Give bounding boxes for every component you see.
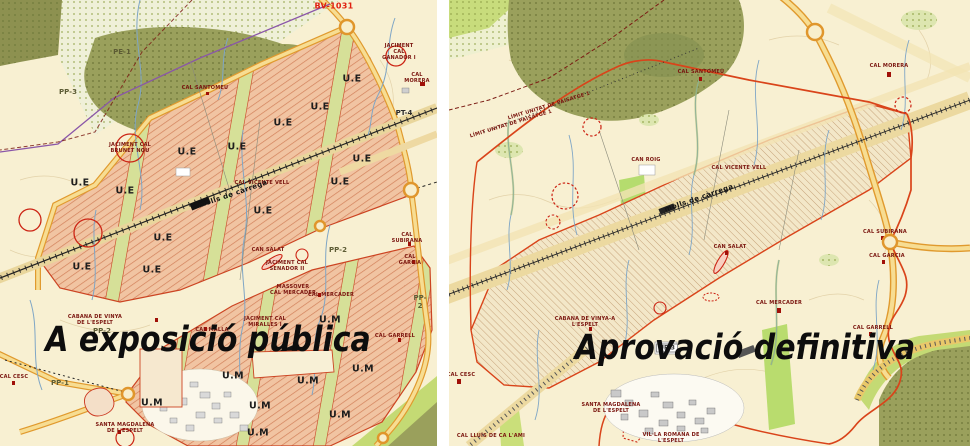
right-map-graphics [449,0,970,446]
left-map-status-title: A exposició pública [45,320,371,360]
right-map-status-title: Aprovació definitiva [575,328,916,368]
map-panel-left: U.EU.EU.EU.EU.EU.EU.EU.EU.EU.EU.EU.EU.EU… [0,0,437,446]
left-map-graphics [0,0,437,446]
panel-divider [437,0,449,446]
map-panel-right: CAL SANTOMEUCAL MORERACAN ROIGCAL VICENT… [449,0,970,446]
map-comparison: U.EU.EU.EU.EU.EU.EU.EU.EU.EU.EU.EU.EU.EU… [0,0,970,446]
